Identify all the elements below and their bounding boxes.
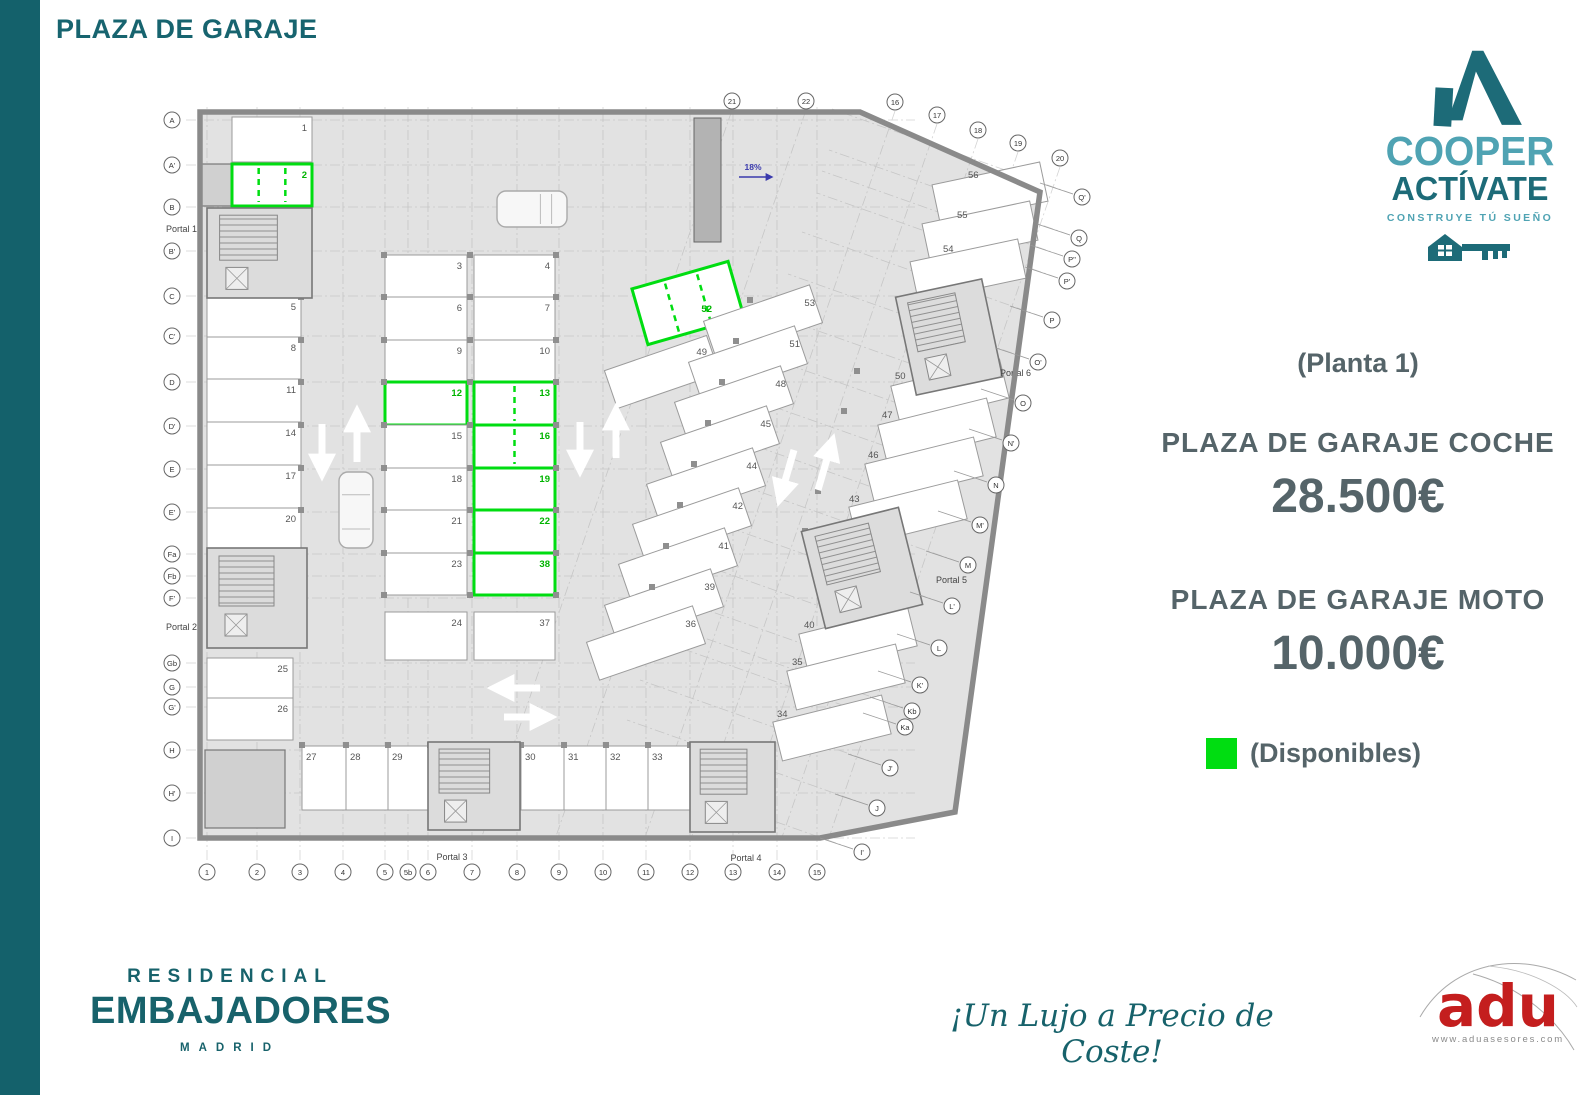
svg-text:L': L' — [949, 602, 955, 611]
svg-text:38: 38 — [539, 559, 550, 570]
svg-text:54: 54 — [943, 244, 954, 255]
available-color-swatch — [1206, 738, 1237, 769]
moto-space-price: 10.000€ — [1128, 626, 1582, 681]
svg-text:L: L — [937, 644, 941, 653]
svg-text:18%: 18% — [744, 162, 761, 172]
svg-text:4: 4 — [341, 868, 345, 877]
parking-space-6 — [385, 297, 467, 340]
car-space-label: PLAZA DE GARAJE COCHE — [1128, 427, 1582, 459]
svg-text:56: 56 — [968, 170, 979, 181]
svg-text:Q': Q' — [1078, 193, 1086, 202]
svg-text:33: 33 — [652, 752, 663, 763]
pricing-block: (Planta 1) PLAZA DE GARAJE COCHE 28.500€… — [1128, 348, 1582, 741]
svg-text:D: D — [169, 378, 175, 387]
svg-text:43: 43 — [849, 494, 860, 505]
svg-text:7: 7 — [545, 303, 550, 314]
svg-text:1: 1 — [302, 123, 307, 134]
svg-text:I': I' — [860, 848, 864, 857]
svg-text:45: 45 — [760, 419, 771, 430]
roof-icon — [1395, 30, 1545, 130]
svg-text:24: 24 — [451, 618, 462, 629]
svg-text:P: P — [1049, 316, 1054, 325]
svg-text:9: 9 — [557, 868, 561, 877]
svg-text:C': C' — [169, 332, 176, 341]
svg-text:48: 48 — [775, 379, 786, 390]
svg-text:G': G' — [168, 703, 176, 712]
svg-text:16: 16 — [539, 431, 550, 442]
adu-wordmark: adu — [1418, 980, 1578, 1032]
svg-text:28: 28 — [350, 752, 361, 763]
svg-text:K': K' — [917, 681, 924, 690]
moto-space-label: PLAZA DE GARAJE MOTO — [1128, 584, 1582, 616]
svg-text:2: 2 — [255, 868, 259, 877]
svg-text:1: 1 — [205, 868, 209, 877]
svg-text:13: 13 — [729, 868, 737, 877]
svg-text:F': F' — [169, 594, 176, 603]
svg-text:6: 6 — [426, 868, 430, 877]
parking-space-3 — [385, 255, 467, 297]
svg-text:8: 8 — [515, 868, 519, 877]
svg-text:37: 37 — [539, 618, 550, 629]
parking-space-5 — [207, 296, 301, 337]
brand-city: MADRID — [90, 1042, 370, 1054]
cooper-wordmark: COOPER — [1377, 131, 1563, 172]
svg-text:C: C — [169, 292, 175, 301]
svg-text:H: H — [169, 746, 174, 755]
svg-text:12: 12 — [451, 388, 462, 399]
svg-text:B': B' — [169, 247, 176, 256]
svg-text:E: E — [169, 465, 174, 474]
svg-text:46: 46 — [868, 450, 879, 461]
svg-text:I: I — [171, 834, 173, 843]
slogan-text: ¡Un Lujo a Precio de Coste! — [902, 998, 1322, 1070]
svg-text:O': O' — [1034, 358, 1042, 367]
svg-text:20: 20 — [285, 514, 296, 525]
cooper-activate-logo: COOPER ACTÍVATE CONSTRUYE TÚ SUEÑO — [1372, 30, 1568, 271]
page-title: PLAZA DE GARAJE — [56, 14, 318, 45]
svg-text:N: N — [993, 481, 998, 490]
svg-text:22: 22 — [539, 516, 550, 527]
svg-text:5b: 5b — [404, 868, 412, 877]
available-label: (Disponibles) — [1250, 738, 1421, 769]
svg-text:G: G — [169, 683, 175, 692]
svg-text:19: 19 — [1014, 139, 1022, 148]
svg-text:51: 51 — [789, 339, 800, 350]
svg-text:D': D' — [169, 422, 176, 431]
svg-text:2: 2 — [302, 170, 307, 181]
car-space-price: 28.500€ — [1128, 469, 1582, 524]
portal-3 — [428, 742, 520, 830]
svg-text:P'': P'' — [1068, 255, 1076, 264]
svg-text:26: 26 — [277, 704, 288, 715]
svg-text:P': P' — [1064, 277, 1071, 286]
svg-text:Portal 1: Portal 1 — [166, 224, 197, 234]
svg-text:50: 50 — [895, 371, 906, 382]
portal-4 — [690, 742, 775, 832]
svg-text:55: 55 — [957, 210, 968, 221]
svg-text:N': N' — [1008, 439, 1015, 448]
svg-text:5: 5 — [291, 302, 296, 313]
svg-text:3: 3 — [298, 868, 302, 877]
svg-text:14: 14 — [773, 868, 781, 877]
svg-text:10: 10 — [539, 346, 550, 357]
svg-text:20: 20 — [1056, 154, 1064, 163]
brand-main: EMBAJADORES — [90, 990, 370, 1033]
svg-text:3: 3 — [457, 261, 462, 272]
svg-text:7: 7 — [470, 868, 474, 877]
svg-text:A: A — [169, 116, 174, 125]
svg-text:Portal 5: Portal 5 — [936, 575, 967, 585]
svg-text:47: 47 — [882, 410, 893, 421]
svg-text:35: 35 — [792, 657, 803, 668]
svg-text:E': E' — [169, 508, 176, 517]
svg-text:Portal 4: Portal 4 — [730, 853, 761, 863]
svg-text:15: 15 — [451, 431, 462, 442]
parking-space-9 — [385, 340, 467, 382]
svg-text:B: B — [169, 203, 174, 212]
svg-text:31: 31 — [568, 752, 579, 763]
svg-text:J': J' — [887, 764, 893, 773]
svg-text:39: 39 — [704, 582, 715, 593]
svg-text:M': M' — [976, 521, 984, 530]
adu-logo: adu www.aduasesores.com — [1418, 952, 1578, 1072]
svg-text:27: 27 — [306, 752, 317, 763]
svg-text:M: M — [965, 561, 971, 570]
portal-1 — [207, 208, 312, 298]
left-accent-bar — [0, 0, 40, 1095]
garage-flyer-page: 1258111417202526369121518212324471013161… — [0, 0, 1582, 1095]
svg-text:53: 53 — [804, 298, 815, 309]
svg-text:Portal 2: Portal 2 — [166, 622, 197, 632]
svg-text:Fb: Fb — [168, 572, 177, 581]
svg-text:21: 21 — [451, 516, 462, 527]
availability-legend: (Disponibles) — [1206, 738, 1421, 769]
svg-text:40: 40 — [804, 620, 815, 631]
svg-text:34: 34 — [777, 709, 788, 720]
portal-2 — [207, 548, 307, 648]
svg-text:42: 42 — [732, 501, 743, 512]
svg-text:O: O — [1020, 399, 1026, 408]
svg-text:23: 23 — [451, 559, 462, 570]
svg-text:H': H' — [169, 789, 176, 798]
svg-text:21: 21 — [728, 97, 736, 106]
svg-text:J: J — [875, 804, 879, 813]
svg-text:13: 13 — [539, 388, 550, 399]
svg-text:16: 16 — [891, 98, 899, 107]
svg-text:18: 18 — [451, 474, 462, 485]
svg-text:Gb: Gb — [167, 659, 177, 668]
svg-text:11: 11 — [642, 868, 650, 877]
residencial-logo: RESIDENCIAL EMBAJADORES MADRID — [90, 966, 370, 1054]
svg-text:10: 10 — [599, 868, 607, 877]
svg-text:6: 6 — [457, 303, 462, 314]
svg-text:Ka: Ka — [900, 723, 910, 732]
svg-text:17: 17 — [933, 111, 941, 120]
svg-text:44: 44 — [746, 461, 757, 472]
brand-top: RESIDENCIAL — [90, 966, 370, 988]
svg-text:30: 30 — [525, 752, 536, 763]
svg-text:Q: Q — [1076, 234, 1082, 243]
cooper-tagline: CONSTRUYE TÚ SUEÑO — [1372, 212, 1568, 224]
parking-space-4 — [474, 255, 555, 297]
floor-label: (Planta 1) — [1128, 348, 1582, 379]
svg-text:5: 5 — [383, 868, 387, 877]
svg-text:19: 19 — [539, 474, 550, 485]
svg-text:14: 14 — [285, 428, 296, 439]
key-icon — [1424, 230, 1516, 266]
svg-text:Kb: Kb — [907, 707, 916, 716]
svg-text:17: 17 — [285, 471, 296, 482]
svg-text:8: 8 — [291, 343, 296, 354]
svg-text:25: 25 — [277, 664, 288, 675]
parking-space-7 — [474, 297, 555, 340]
svg-text:11: 11 — [286, 385, 296, 396]
activate-wordmark: ACTÍVATE — [1374, 172, 1566, 207]
svg-text:15: 15 — [813, 868, 821, 877]
svg-text:Portal 3: Portal 3 — [436, 852, 467, 862]
svg-text:36: 36 — [685, 619, 696, 630]
parking-space-8 — [207, 337, 301, 379]
svg-text:4: 4 — [545, 261, 550, 272]
parking-space-1 — [232, 117, 312, 162]
svg-text:Fa: Fa — [168, 550, 178, 559]
svg-text:32: 32 — [610, 752, 621, 763]
svg-text:12: 12 — [686, 868, 694, 877]
adu-website: www.aduasesores.com — [1418, 1034, 1578, 1045]
svg-text:22: 22 — [802, 97, 810, 106]
svg-text:52: 52 — [701, 304, 712, 315]
svg-text:29: 29 — [392, 752, 403, 763]
svg-text:18: 18 — [974, 126, 982, 135]
svg-text:41: 41 — [718, 541, 729, 552]
parking-space-2 — [232, 164, 312, 206]
svg-text:A': A' — [169, 161, 176, 170]
svg-text:9: 9 — [457, 346, 462, 357]
